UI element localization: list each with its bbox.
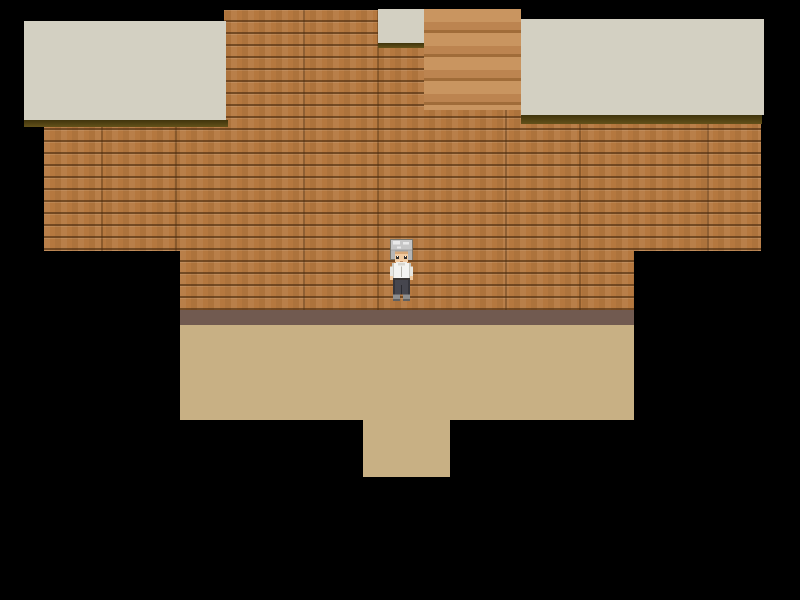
player-face bbox=[395, 252, 408, 263]
floor-doorway-extension[interactable] bbox=[363, 420, 450, 477]
staircase[interactable] bbox=[424, 9, 521, 110]
ceiling-edge-top-center bbox=[378, 43, 424, 48]
player-legs bbox=[393, 278, 410, 301]
ceiling-block-right bbox=[521, 19, 764, 115]
ceiling-edge-left bbox=[24, 120, 228, 127]
player-character-sprite bbox=[385, 238, 418, 301]
ceiling-block-left bbox=[24, 21, 226, 120]
player-character[interactable] bbox=[385, 238, 418, 301]
floor[interactable] bbox=[180, 325, 634, 420]
game-viewport[interactable] bbox=[0, 0, 800, 600]
ceiling-edge-right bbox=[521, 115, 762, 124]
ceiling-block-top-center bbox=[378, 9, 424, 43]
baseboard bbox=[180, 310, 634, 325]
player-torso bbox=[390, 262, 413, 280]
